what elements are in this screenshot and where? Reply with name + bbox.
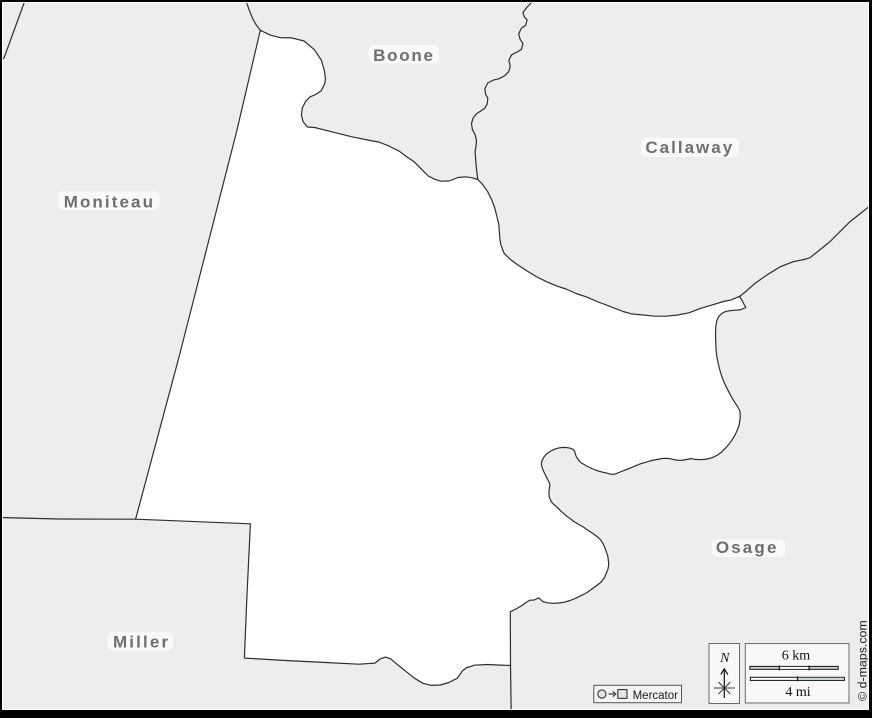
svg-text:Mercator: Mercator — [633, 690, 679, 702]
svg-text:Callaway: Callaway — [645, 138, 734, 157]
svg-text:Osage: Osage — [716, 538, 779, 557]
svg-text:6 km: 6 km — [782, 649, 811, 664]
svg-text:4 mi: 4 mi — [785, 685, 810, 700]
svg-text:Boone: Boone — [373, 46, 435, 65]
svg-text:Moniteau: Moniteau — [64, 193, 155, 212]
svg-text:© d-maps.com: © d-maps.com — [856, 620, 870, 701]
svg-text:Miller: Miller — [113, 633, 170, 652]
svg-text:N: N — [719, 651, 730, 666]
